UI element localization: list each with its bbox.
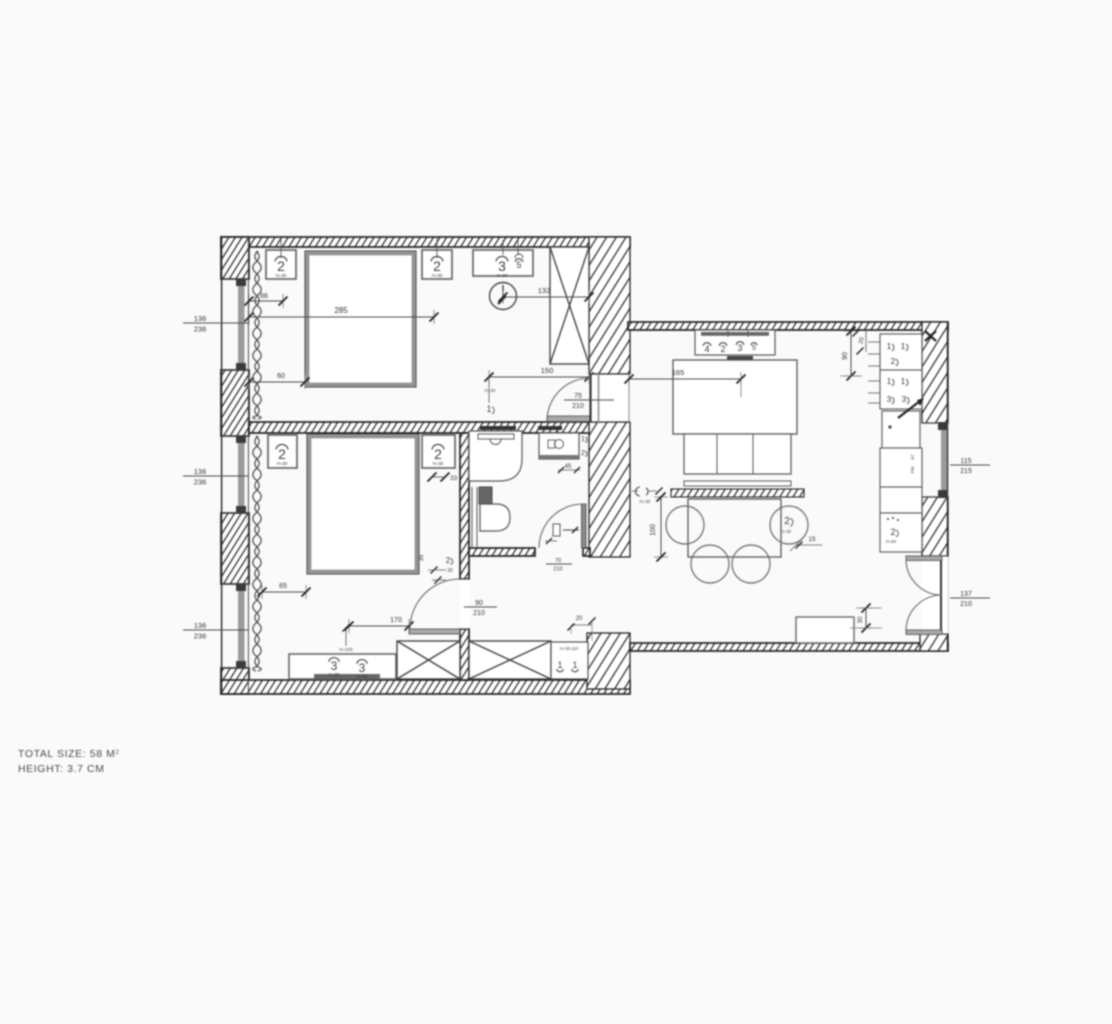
svg-text:1: 1 [557,660,562,670]
svg-text:137: 137 [960,591,972,598]
svg-text:HEIGHT: 3.7 CM: HEIGHT: 3.7 CM [18,763,105,775]
svg-text:67: 67 [910,454,915,460]
svg-text:2: 2 [720,344,725,354]
svg-text:210: 210 [473,610,485,617]
svg-text:1: 1 [581,436,585,443]
svg-text:1: 1 [887,341,892,351]
svg-text:100: 100 [650,524,657,536]
svg-text:65: 65 [279,583,287,590]
svg-text:20: 20 [576,616,583,622]
svg-text:236: 236 [194,632,207,641]
svg-text:2: 2 [581,450,585,457]
svg-text:H=30-110: H=30-110 [560,646,579,651]
svg-text:136: 136 [194,467,207,476]
svg-text:165: 165 [672,368,685,377]
svg-text:60: 60 [277,373,285,380]
svg-text:1: 1 [901,341,906,351]
svg-text:210: 210 [553,567,562,573]
svg-text:150: 150 [541,366,554,375]
svg-text:H=30: H=30 [485,388,496,393]
svg-text:35: 35 [419,554,425,561]
svg-text:4: 4 [704,344,709,354]
svg-text:170: 170 [390,617,402,624]
svg-text:210: 210 [572,403,584,410]
svg-text:136: 136 [194,314,207,323]
svg-text:H=60: H=60 [886,539,897,544]
svg-text:2: 2 [278,446,286,462]
svg-text:1: 1 [572,660,577,670]
svg-text:45: 45 [565,464,572,470]
svg-text:210: 210 [960,601,972,608]
svg-text:3: 3 [902,394,907,404]
svg-text:15: 15 [808,536,816,543]
svg-text:H=60: H=60 [357,674,368,679]
svg-text:3: 3 [331,659,338,673]
svg-text:2: 2 [433,258,441,274]
svg-text:236: 236 [194,325,207,334]
svg-text:285: 285 [334,306,348,315]
svg-text:75: 75 [574,393,582,400]
svg-text:2: 2 [446,556,451,565]
svg-text:5: 5 [752,345,756,352]
svg-text:H=30: H=30 [781,529,792,534]
svg-text:5: 5 [516,260,521,270]
svg-text:2: 2 [891,356,896,366]
svg-text:3: 3 [737,343,742,353]
svg-text:2: 2 [277,258,285,274]
svg-text:1: 1 [486,404,491,414]
svg-text:H=30: H=30 [497,273,508,278]
svg-text:TOTAL SIZE: 58 M2: TOTAL SIZE: 58 M2 [18,748,120,760]
svg-text:PM: PM [910,466,915,473]
svg-text:H=30: H=30 [640,499,651,504]
svg-text:3: 3 [887,394,892,404]
svg-text:H=30: H=30 [433,461,444,466]
svg-text:H=100: H=100 [339,647,353,652]
svg-text:90: 90 [475,600,483,607]
svg-text:2: 2 [784,516,790,527]
svg-text:2: 2 [890,527,895,537]
svg-text:136: 136 [194,621,207,630]
svg-text:236: 236 [194,478,207,487]
svg-text:3: 3 [359,661,366,675]
svg-text:3: 3 [498,258,506,274]
svg-text:30: 30 [858,616,864,623]
svg-text:66: 66 [260,293,268,300]
svg-text:115: 115 [960,458,971,465]
svg-text:H=30: H=30 [277,461,288,466]
svg-text:70: 70 [555,558,561,564]
svg-text:215: 215 [960,468,972,475]
svg-text:1: 1 [887,376,892,386]
svg-text:1: 1 [901,376,906,386]
svg-text:H=30: H=30 [329,672,340,677]
svg-text:H=30: H=30 [276,273,287,278]
svg-text:H=30: H=30 [432,273,443,278]
svg-text:2: 2 [434,446,442,462]
svg-text:33: 33 [450,475,458,482]
svg-text:90: 90 [842,352,849,360]
svg-text:132: 132 [538,286,551,295]
svg-text:30: 30 [447,568,453,574]
